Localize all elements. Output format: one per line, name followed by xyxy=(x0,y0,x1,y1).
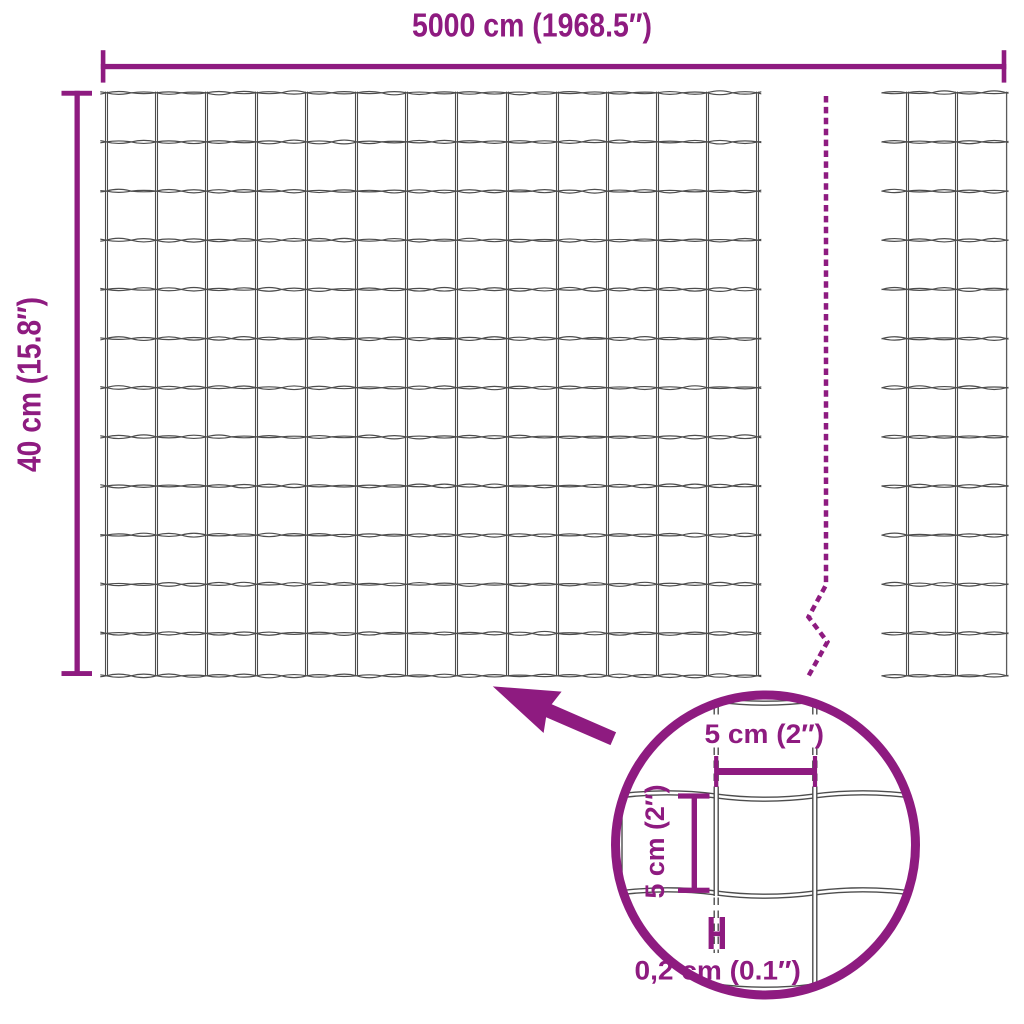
svg-text:40 cm (15.8″): 40 cm (15.8″) xyxy=(11,297,48,472)
svg-text:5000 cm (1968.5″): 5000 cm (1968.5″) xyxy=(412,7,652,44)
svg-text:5 cm (2″): 5 cm (2″) xyxy=(640,785,670,899)
svg-text:0,2 cm (0.1″): 0,2 cm (0.1″) xyxy=(635,956,801,986)
svg-text:5 cm (2″): 5 cm (2″) xyxy=(705,719,825,749)
